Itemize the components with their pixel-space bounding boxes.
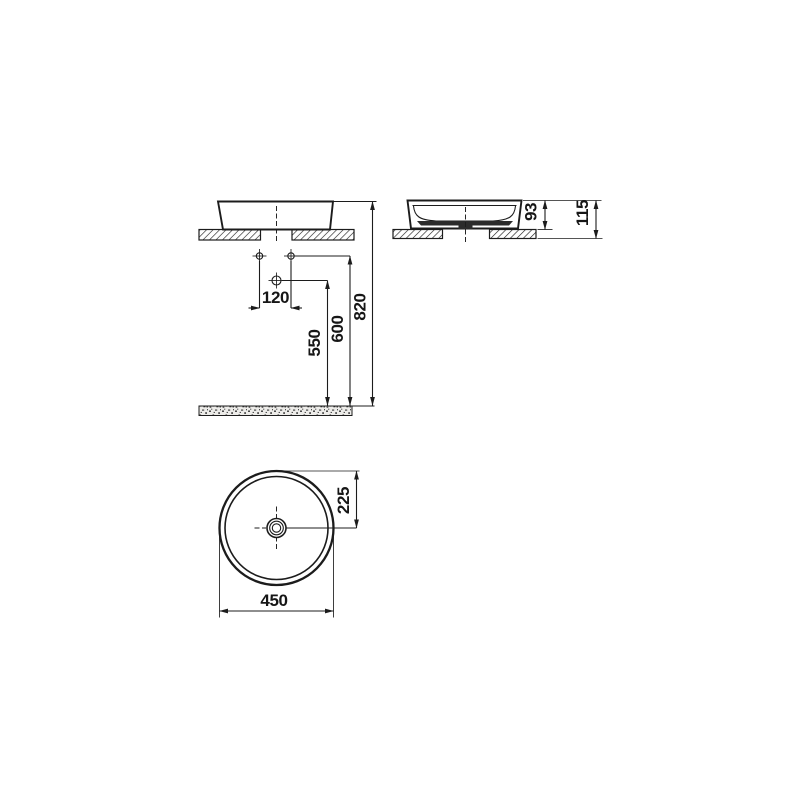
dim-label-115: 115 [573, 200, 592, 226]
front-basin-outline [218, 202, 333, 230]
dim-label-820: 820 [351, 293, 370, 320]
dim-label-225: 225 [334, 487, 353, 514]
dim-label-93: 93 [522, 203, 541, 221]
front-counter-left [199, 230, 261, 241]
floor-bar [199, 406, 352, 416]
side-view: 93 115 [393, 200, 603, 243]
dim-label-550: 550 [305, 329, 324, 356]
dimension-600: 600 [328, 256, 350, 406]
front-counter-right [292, 230, 354, 241]
dimension-550: 550 [305, 281, 328, 406]
technical-drawing-page: 120 550 600 820 [0, 0, 800, 800]
technical-drawing-canvas: 120 550 600 820 [0, 0, 800, 800]
side-counter-right [490, 230, 537, 239]
dim-label-120: 120 [262, 288, 289, 307]
supply-hole-left [253, 249, 267, 263]
side-counter-left [393, 230, 443, 239]
dim-label-600: 600 [328, 315, 347, 342]
dim-label-450: 450 [260, 591, 287, 610]
dimension-115: 115 [573, 200, 596, 239]
top-view: 225 450 [220, 471, 360, 618]
dimension-93: 93 [522, 201, 546, 230]
front-view: 120 550 600 820 [199, 202, 377, 416]
